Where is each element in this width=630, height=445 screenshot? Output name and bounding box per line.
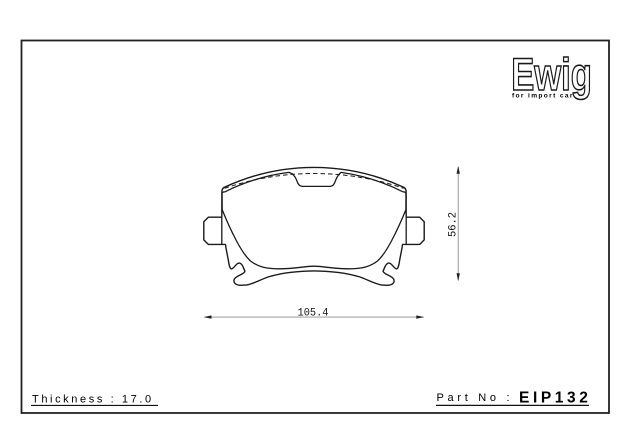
svg-text:EIP132: EIP132 — [519, 390, 591, 407]
svg-text:Thickness : 17.0: Thickness : 17.0 — [32, 394, 154, 406]
svg-text:105.4: 105.4 — [298, 307, 329, 319]
svg-text:for import car: for import car — [512, 92, 574, 99]
svg-text:Part No :: Part No : — [437, 392, 514, 404]
svg-text:56.2: 56.2 — [447, 212, 459, 237]
